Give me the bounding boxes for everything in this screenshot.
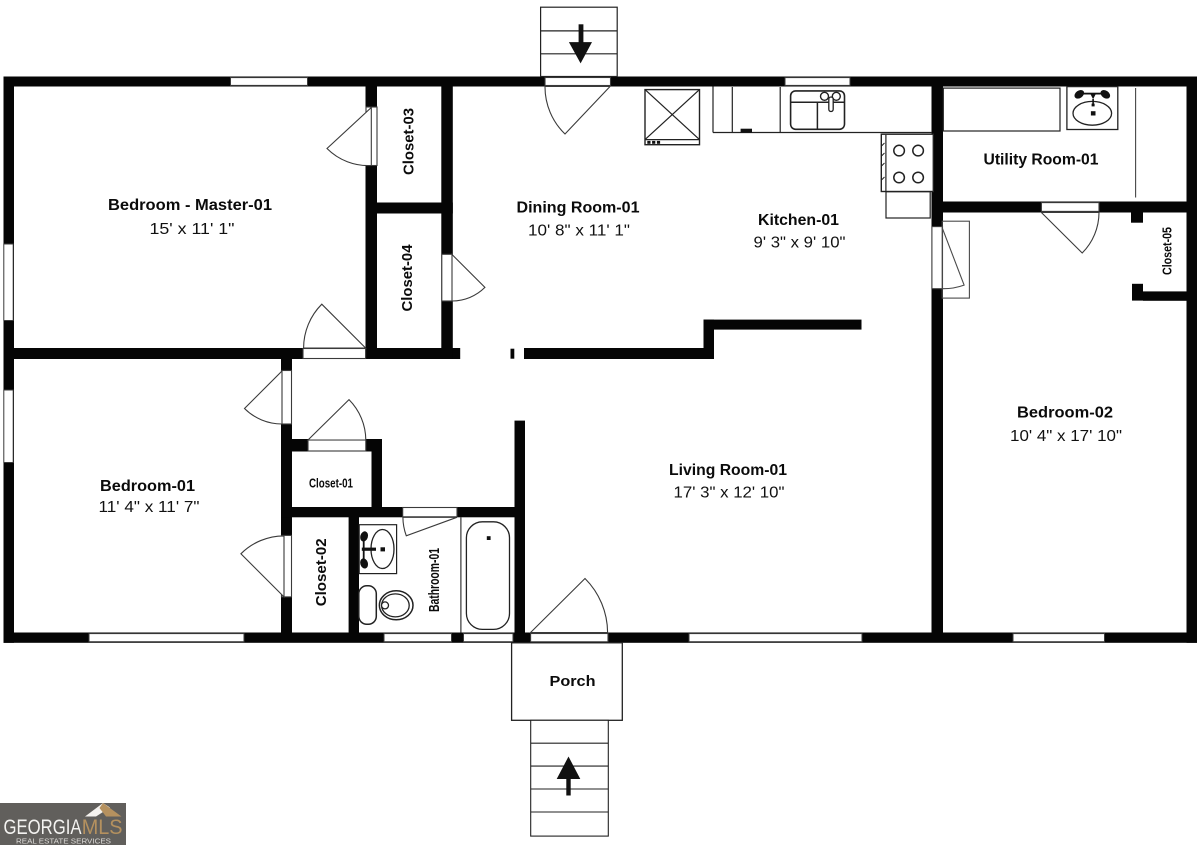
svg-text:Bedroom - Master-01: Bedroom - Master-01 bbox=[108, 197, 272, 214]
svg-text:GEORGIA: GEORGIA bbox=[4, 815, 83, 839]
svg-text:Closet-01: Closet-01 bbox=[309, 477, 353, 491]
svg-text:Bedroom-02: Bedroom-02 bbox=[1017, 405, 1113, 422]
svg-text:Porch: Porch bbox=[550, 673, 596, 690]
svg-text:Living Room-01: Living Room-01 bbox=[669, 462, 787, 479]
svg-text:MLS: MLS bbox=[82, 815, 123, 839]
svg-text:Closet-04: Closet-04 bbox=[399, 244, 416, 312]
svg-text:Utility Room-01: Utility Room-01 bbox=[984, 152, 1099, 169]
svg-text:Dining Room-01: Dining Room-01 bbox=[517, 200, 640, 217]
svg-text:REAL ESTATE SERVICES: REAL ESTATE SERVICES bbox=[16, 839, 111, 845]
svg-text:10' 8" x 11' 1": 10' 8" x 11' 1" bbox=[528, 223, 630, 240]
svg-text:10' 4" x 17' 10": 10' 4" x 17' 10" bbox=[1010, 428, 1122, 445]
svg-text:9' 3" x 9' 10": 9' 3" x 9' 10" bbox=[754, 235, 846, 252]
svg-text:Closet-03: Closet-03 bbox=[401, 108, 418, 175]
svg-text:Bathroom-01: Bathroom-01 bbox=[426, 548, 443, 612]
svg-text:17' 3" x 12' 10": 17' 3" x 12' 10" bbox=[674, 485, 785, 502]
svg-text:Bedroom-01: Bedroom-01 bbox=[100, 478, 195, 495]
svg-text:Closet-05: Closet-05 bbox=[1161, 227, 1175, 275]
svg-text:11' 4" x 11' 7": 11' 4" x 11' 7" bbox=[99, 499, 200, 516]
svg-text:Closet-02: Closet-02 bbox=[313, 538, 330, 606]
svg-text:15' x 11' 1": 15' x 11' 1" bbox=[150, 221, 235, 238]
svg-text:Kitchen-01: Kitchen-01 bbox=[758, 212, 839, 229]
